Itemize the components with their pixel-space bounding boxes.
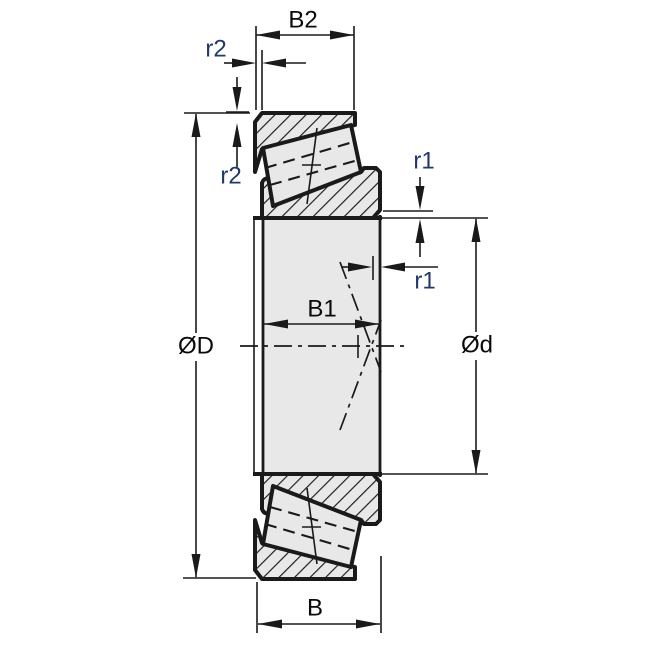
- dimension-b2: B2: [256, 6, 354, 110]
- arrowhead: [262, 59, 286, 68]
- arrowhead: [416, 219, 425, 243]
- arrowhead: [381, 263, 405, 272]
- arrowhead: [192, 113, 201, 137]
- label-r1-lower: r1: [414, 267, 435, 294]
- dimension-bore-diameter: Ød: [382, 218, 498, 474]
- label-r2-top: r2: [205, 35, 226, 62]
- arrowhead: [330, 31, 354, 40]
- arrowhead: [258, 620, 282, 629]
- bearing-cross-section-drawing: B2 r2 r2 r1 r1: [0, 0, 670, 670]
- dimension-r1-vertical: r1: [383, 147, 435, 257]
- arrowhead: [472, 218, 481, 242]
- label-b2: B2: [288, 6, 317, 33]
- arrowhead: [232, 59, 256, 68]
- label-b1: B1: [307, 295, 336, 322]
- arrowhead: [256, 31, 280, 40]
- label-outer-diameter: ØD: [178, 332, 214, 359]
- arrowhead: [233, 123, 242, 147]
- arrowhead: [356, 620, 380, 629]
- arrowhead: [192, 554, 201, 578]
- label-r1-upper: r1: [413, 147, 434, 174]
- label-b: B: [307, 594, 323, 621]
- drawing-canvas: B2 r2 r2 r1 r1: [0, 0, 670, 670]
- label-bore-diameter: Ød: [461, 331, 493, 358]
- arrowhead: [233, 87, 242, 111]
- dimension-r2-vertical: r2: [220, 77, 249, 189]
- label-r2-left: r2: [220, 162, 241, 189]
- arrowhead: [472, 450, 481, 474]
- arrowhead: [416, 186, 425, 210]
